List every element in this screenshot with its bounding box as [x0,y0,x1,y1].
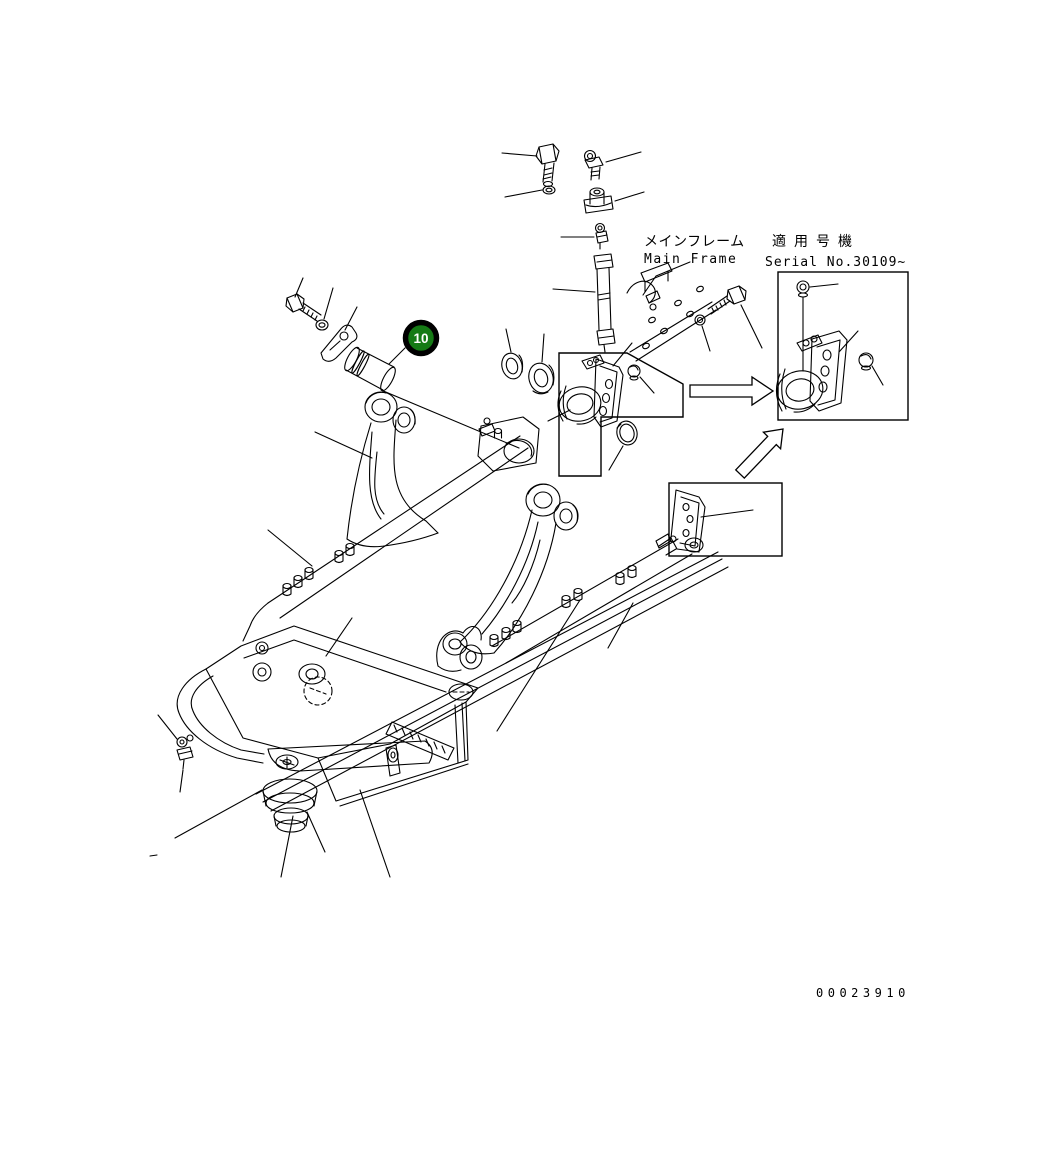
lubrication-tube [553,254,615,352]
plug-bolt [628,365,654,393]
left-bolt [286,278,321,321]
trunnion-cap [548,343,632,427]
detail-arrow-up-right-icon [736,429,783,478]
top-bolt [502,144,559,187]
leader-lines [150,432,633,877]
blade-ball-joint [263,741,432,832]
drawing-number: 00023910 [816,986,910,1000]
serial-label-en: Serial No.30109~ [765,255,906,270]
annotation-labels: メインフレーム Main Frame 適用号機 Serial No.30109~… [643,233,910,1000]
main-frame-label-en: Main Frame [644,252,737,267]
parts-diagram-page: 10 [0,0,1062,1149]
serial-mount-bolt [797,281,838,371]
keeper-clamp [321,307,357,361]
hose-clamp-block [584,188,644,213]
balloon-number: 10 [413,331,428,346]
bushing-small [499,329,525,381]
main-frame-label-jp: メインフレーム [644,234,745,250]
serial-label-jp: 適用号機 [772,233,860,250]
main-frame-outline [243,263,762,811]
serial-trunnion-cap [774,331,858,413]
bushing-large [526,334,557,396]
snap-ring [609,419,640,470]
trunnion-detail-box [548,343,683,476]
grease-fitting-top [561,224,608,250]
rear-bracket-detail-box [659,483,782,556]
elbow-fitting [585,151,642,181]
rear-bracket [659,490,753,555]
left-washer [316,288,333,330]
callout-balloon-10[interactable]: 10 [389,323,437,365]
grease-fitting-lower [158,715,193,792]
detail-arrow-right-icon [690,377,773,405]
top-washer [505,186,555,197]
serial-detail-box [774,272,908,420]
serial-plug-bolt [859,353,883,385]
exploded-parts-drawing: 10 [0,0,1062,1149]
